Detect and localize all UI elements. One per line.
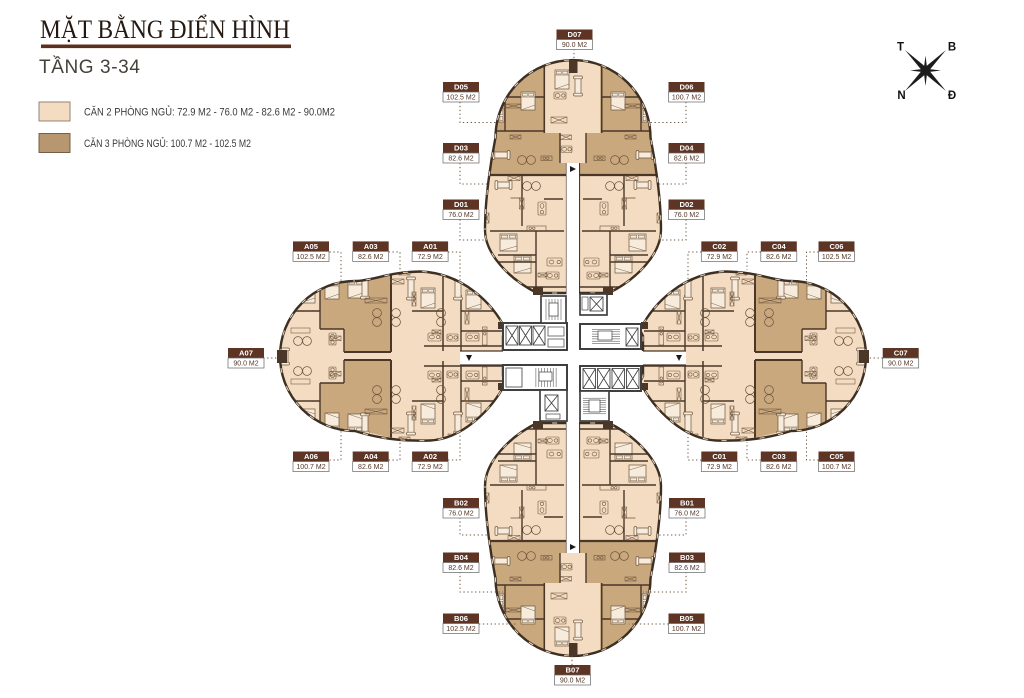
svg-text:TẦNG 3-34: TẦNG 3-34 [39, 56, 141, 78]
svg-text:D07: D07 [568, 30, 582, 39]
svg-text:76.0 M2: 76.0 M2 [448, 212, 473, 219]
svg-text:B05: B05 [680, 614, 695, 623]
svg-text:82.6 M2: 82.6 M2 [674, 565, 699, 572]
svg-text:Đ: Đ [948, 90, 956, 102]
svg-text:100.7 M2: 100.7 M2 [672, 94, 701, 101]
svg-text:82.6 M2: 82.6 M2 [766, 464, 791, 471]
svg-text:C05: C05 [830, 452, 845, 461]
svg-text:90.0 M2: 90.0 M2 [562, 42, 587, 49]
svg-text:MẶT BẰNG ĐIỂN HÌNH: MẶT BẰNG ĐIỂN HÌNH [40, 15, 290, 44]
svg-text:100.7 M2: 100.7 M2 [296, 464, 325, 471]
svg-text:82.6 M2: 82.6 M2 [674, 155, 699, 162]
svg-text:102.5 M2: 102.5 M2 [296, 254, 325, 261]
svg-text:76.0 M2: 76.0 M2 [674, 510, 699, 517]
svg-text:82.6 M2: 82.6 M2 [448, 565, 473, 572]
svg-text:CĂN 2 PHÒNG NGỦ: 72.9 M2 - 76.: CĂN 2 PHÒNG NGỦ: 72.9 M2 - 76.0 M2 - 82.… [84, 106, 335, 119]
svg-text:C07: C07 [894, 349, 908, 358]
svg-text:90.0 M2: 90.0 M2 [560, 677, 585, 684]
svg-text:82.6 M2: 82.6 M2 [358, 254, 383, 261]
svg-text:76.0 M2: 76.0 M2 [448, 510, 473, 517]
svg-text:A06: A06 [304, 452, 318, 461]
svg-text:D01: D01 [454, 200, 469, 209]
svg-text:A01: A01 [423, 242, 438, 251]
svg-text:72.9 M2: 72.9 M2 [707, 464, 732, 471]
svg-text:D02: D02 [680, 200, 694, 209]
svg-text:102.5 M2: 102.5 M2 [446, 626, 475, 633]
svg-text:N: N [897, 90, 905, 102]
svg-text:102.5 M2: 102.5 M2 [446, 94, 475, 101]
svg-text:72.9 M2: 72.9 M2 [707, 254, 732, 261]
svg-text:B: B [948, 42, 956, 54]
svg-text:102.5 M2: 102.5 M2 [822, 254, 851, 261]
svg-text:B03: B03 [680, 553, 694, 562]
svg-text:D03: D03 [454, 144, 468, 153]
svg-text:76.0 M2: 76.0 M2 [674, 212, 699, 219]
svg-text:82.6 M2: 82.6 M2 [766, 254, 791, 261]
svg-text:B04: B04 [454, 553, 469, 562]
svg-text:C01: C01 [712, 452, 727, 461]
svg-text:B01: B01 [680, 499, 695, 508]
svg-text:82.6 M2: 82.6 M2 [448, 155, 473, 162]
svg-text:100.7 M2: 100.7 M2 [672, 626, 701, 633]
svg-text:B06: B06 [454, 614, 468, 623]
svg-text:72.9 M2: 72.9 M2 [417, 254, 442, 261]
svg-text:CĂN 3 PHÒNG NGỦ: 100.7 M2 - 10: CĂN 3 PHÒNG NGỦ: 100.7 M2 - 102.5 M2 [84, 137, 251, 150]
svg-text:A04: A04 [364, 452, 379, 461]
svg-text:82.6 M2: 82.6 M2 [358, 464, 383, 471]
svg-text:100.7 M2: 100.7 M2 [822, 464, 851, 471]
svg-text:D06: D06 [680, 83, 694, 92]
svg-text:C06: C06 [830, 242, 844, 251]
svg-text:B02: B02 [454, 499, 468, 508]
svg-text:D04: D04 [680, 144, 695, 153]
svg-text:D05: D05 [454, 83, 469, 92]
svg-text:T: T [897, 42, 904, 54]
svg-text:90.0 M2: 90.0 M2 [233, 360, 258, 367]
svg-text:C04: C04 [772, 242, 787, 251]
svg-text:A07: A07 [239, 349, 253, 358]
svg-text:A05: A05 [304, 242, 319, 251]
svg-text:90.0 M2: 90.0 M2 [888, 360, 913, 367]
svg-text:A03: A03 [364, 242, 378, 251]
svg-text:C03: C03 [772, 452, 786, 461]
svg-text:B07: B07 [566, 666, 580, 675]
svg-text:72.9 M2: 72.9 M2 [417, 464, 442, 471]
svg-text:A02: A02 [423, 452, 437, 461]
svg-text:C02: C02 [712, 242, 726, 251]
